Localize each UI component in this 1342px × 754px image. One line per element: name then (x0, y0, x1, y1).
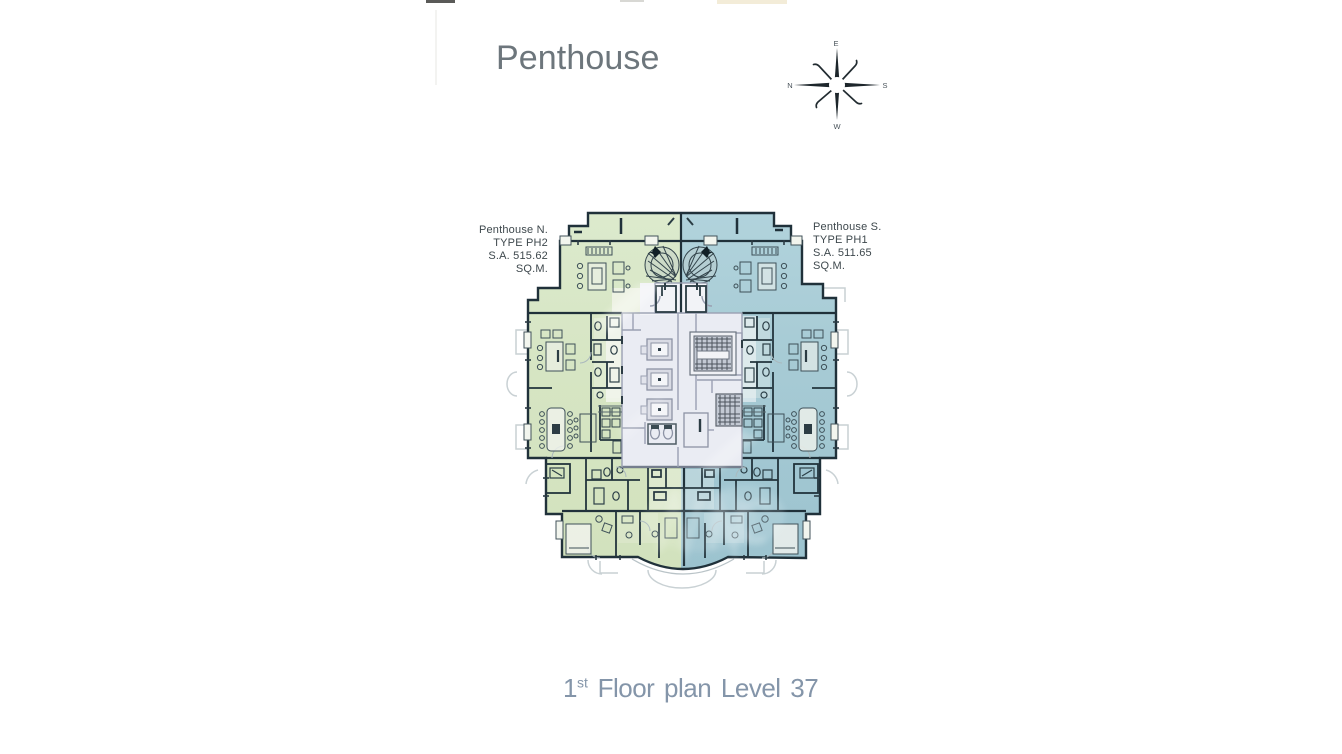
svg-text:W: W (833, 122, 841, 131)
svg-text:S: S (882, 81, 887, 90)
svg-text:E: E (833, 39, 838, 48)
svg-text:N: N (787, 81, 792, 90)
